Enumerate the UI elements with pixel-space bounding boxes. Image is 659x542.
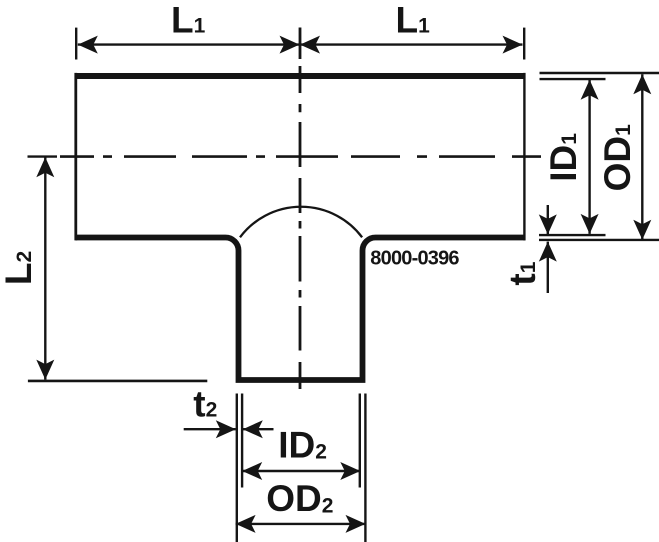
svg-text:OD1: OD1 [597,124,638,192]
svg-text:L2: L2 [0,251,39,285]
svg-text:OD2: OD2 [266,478,333,519]
svg-text:t2: t2 [193,383,217,424]
svg-text:ID1: ID1 [543,133,584,182]
svg-text:L1: L1 [171,0,206,40]
svg-text:ID2: ID2 [278,424,327,465]
svg-text:L1: L1 [396,0,431,40]
svg-text:t1: t1 [502,261,543,285]
svg-text:8000-0396: 8000-0396 [370,247,459,269]
